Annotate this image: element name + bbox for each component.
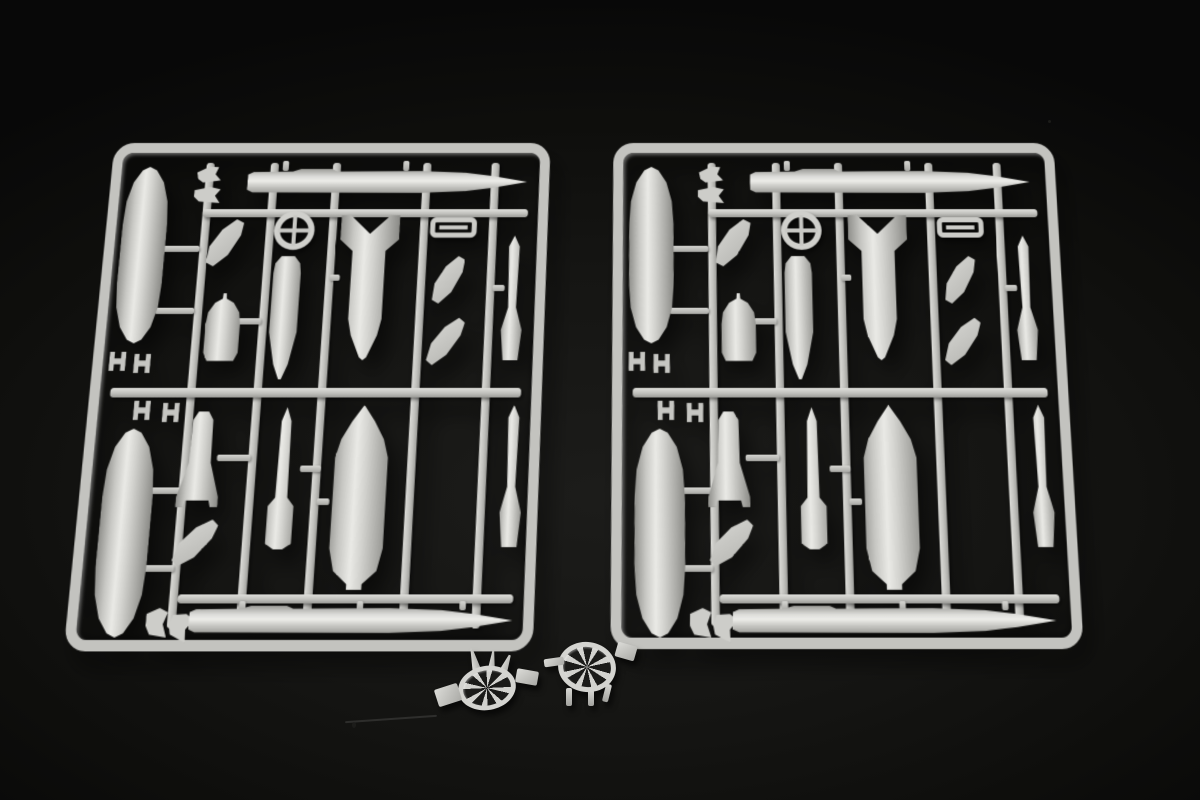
part-curved-fin bbox=[204, 219, 244, 266]
part-bomblet bbox=[719, 293, 759, 362]
sprue-gate-stub bbox=[841, 275, 851, 281]
part-slender-store bbox=[782, 256, 817, 379]
part-drop-tank-lower bbox=[89, 429, 159, 638]
sprue-gate-stub bbox=[403, 161, 410, 171]
part-pylon-adapter bbox=[937, 217, 985, 237]
part-ring-collar bbox=[781, 211, 822, 250]
sprue-gate-stub bbox=[1002, 601, 1009, 610]
sprue-gate-stub bbox=[316, 498, 329, 505]
part-sway-brace bbox=[162, 403, 180, 422]
part-curved-fin bbox=[430, 256, 465, 304]
fuze-leg bbox=[566, 688, 572, 706]
part-drop-tank-lower bbox=[634, 429, 686, 638]
sprue-runner-bar bbox=[202, 209, 528, 217]
part-sway-brace bbox=[629, 352, 646, 371]
sprue-gate-stub bbox=[784, 161, 790, 171]
part-sway-brace bbox=[687, 403, 704, 422]
part-sway-brace bbox=[133, 354, 151, 373]
part-slender-missile bbox=[498, 236, 528, 361]
part-cruise-missile-bottom bbox=[733, 606, 1058, 636]
part-drop-tank-upper bbox=[629, 167, 674, 343]
sprue-gate-tab bbox=[515, 668, 539, 686]
part-slender-missile bbox=[496, 405, 527, 547]
sprue-gate-stub bbox=[670, 308, 709, 314]
part-heavy-bomb bbox=[321, 405, 395, 590]
part-sway-brace bbox=[653, 354, 670, 373]
part-curved-fin bbox=[942, 256, 977, 304]
sprue-right-area bbox=[603, 143, 1076, 649]
part-bomblet bbox=[200, 293, 245, 362]
sprue-gate-stub bbox=[683, 565, 713, 572]
sprue-gate-tab bbox=[434, 683, 462, 708]
sprue-gate-stub bbox=[238, 318, 261, 324]
fuze-leg bbox=[588, 690, 594, 706]
sprue-gate-stub bbox=[904, 161, 910, 171]
sprue-runner-bar bbox=[633, 388, 1048, 398]
part-curved-fin bbox=[944, 314, 981, 369]
sprue-gate-tab bbox=[614, 642, 637, 662]
part-slim-bomb bbox=[258, 407, 306, 549]
part-small-fitting bbox=[698, 187, 724, 203]
part-cruise-missile-top bbox=[246, 169, 527, 195]
sprue-gate-stub bbox=[754, 318, 777, 324]
sprue-gate-stub bbox=[459, 601, 466, 610]
fuze-wheel-left bbox=[436, 648, 540, 718]
part-drop-tank-upper bbox=[111, 167, 172, 343]
part-ring-collar bbox=[273, 211, 316, 250]
part-slender-missile bbox=[1025, 405, 1058, 547]
background-scratch bbox=[345, 715, 437, 723]
sprue-runner-bar bbox=[110, 388, 521, 398]
sprue-gate-stub bbox=[830, 466, 851, 473]
part-slender-missile bbox=[1010, 236, 1041, 361]
sprue-gate-stub bbox=[849, 498, 862, 505]
sprue-runner-bar bbox=[708, 209, 1038, 217]
part-sway-brace bbox=[108, 352, 126, 371]
sprue-left-lean bbox=[63, 143, 550, 651]
part-pylon-fitting bbox=[690, 608, 712, 638]
part-slim-bomb bbox=[793, 407, 834, 549]
sprue-gate-stub bbox=[329, 275, 340, 281]
fuze-wheel-right bbox=[544, 642, 636, 708]
part-finned-bomb bbox=[332, 215, 400, 360]
part-curved-fin bbox=[424, 314, 466, 369]
sprue-gate-stub bbox=[144, 565, 174, 572]
sprue-gate-stub bbox=[283, 161, 290, 171]
sprue-gate-stub bbox=[155, 308, 195, 314]
background-speck bbox=[1048, 120, 1051, 123]
sprue-left-area bbox=[81, 143, 550, 651]
fuze-wheel-disc bbox=[455, 661, 520, 715]
part-cruise-missile-top bbox=[750, 169, 1031, 195]
sprue-gate-stub bbox=[672, 246, 709, 252]
sprue-gate-stub bbox=[683, 487, 713, 494]
part-sway-brace bbox=[658, 401, 675, 420]
part-pylon-fitting bbox=[144, 608, 168, 638]
part-finned-bomb bbox=[847, 215, 911, 360]
sprue-gate-stub bbox=[217, 455, 251, 462]
sprue-right-host bbox=[610, 143, 1083, 649]
sprue-right bbox=[610, 143, 1083, 649]
part-heavy-bomb bbox=[857, 405, 926, 590]
part-small-fitting bbox=[193, 187, 221, 203]
sprue-gate-stub bbox=[1005, 285, 1018, 291]
part-pylon-adapter bbox=[430, 217, 478, 237]
sprue-gate-stub bbox=[746, 455, 780, 462]
part-sway-brace bbox=[133, 401, 151, 420]
part-curved-fin bbox=[714, 219, 751, 266]
sprue-gate-stub bbox=[151, 487, 181, 494]
sprue-left bbox=[63, 143, 550, 651]
sprue-runner-bar bbox=[720, 594, 1060, 603]
sprue-gate-stub bbox=[492, 285, 505, 291]
sprue-gate-stub bbox=[163, 246, 200, 252]
photo-background bbox=[0, 0, 1200, 800]
sprue-gate-stub bbox=[300, 466, 321, 473]
background-speck bbox=[352, 722, 356, 728]
